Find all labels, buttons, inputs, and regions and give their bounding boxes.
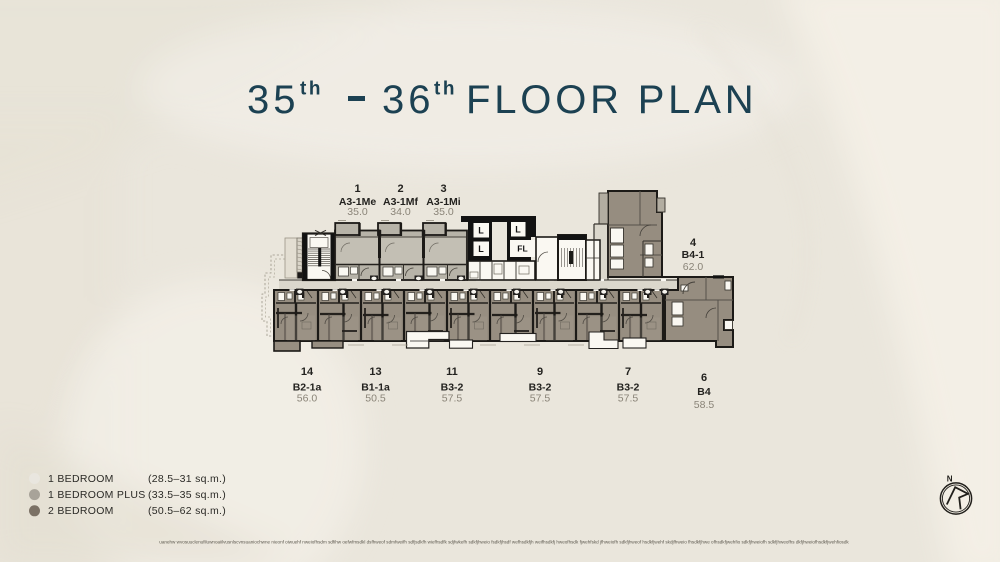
svg-text:B4: B4: [697, 386, 711, 398]
svg-text:L: L: [478, 244, 484, 254]
svg-text:62.0: 62.0: [683, 261, 704, 273]
svg-text:6: 6: [701, 372, 707, 384]
svg-text:11: 11: [446, 366, 458, 378]
svg-text:7: 7: [625, 366, 631, 378]
svg-text:36: 36: [382, 78, 435, 122]
svg-text:35: 35: [247, 78, 300, 122]
svg-text:13: 13: [369, 366, 381, 378]
svg-text:(33.5–35 sq.m.): (33.5–35 sq.m.): [148, 489, 226, 501]
svg-text:FL: FL: [517, 244, 527, 254]
svg-text:(50.5–62 sq.m.): (50.5–62 sq.m.): [148, 505, 226, 517]
svg-text:1 BEDROOM: 1 BEDROOM: [48, 473, 114, 485]
svg-text:57.5: 57.5: [530, 393, 551, 405]
svg-text:2 BEDROOM: 2 BEDROOM: [48, 505, 114, 517]
svg-text:50.5: 50.5: [365, 393, 386, 405]
svg-text:35.0: 35.0: [433, 206, 454, 218]
svg-text:L: L: [515, 225, 521, 235]
svg-text:57.5: 57.5: [618, 393, 639, 405]
svg-text:1 BEDROOM PLUS: 1 BEDROOM PLUS: [48, 489, 146, 501]
svg-text:57.5: 57.5: [442, 393, 463, 405]
svg-text:9: 9: [537, 366, 543, 378]
svg-text:34.0: 34.0: [390, 206, 411, 218]
svg-text:14: 14: [301, 366, 314, 378]
svg-text:L: L: [478, 226, 484, 236]
svg-text:4: 4: [690, 237, 697, 249]
svg-text:(28.5–31 sq.m.): (28.5–31 sq.m.): [148, 473, 226, 485]
svg-text:1: 1: [354, 183, 360, 195]
svg-text:th: th: [434, 79, 457, 100]
svg-text:th: th: [300, 79, 323, 100]
svg-text:58.5: 58.5: [694, 399, 715, 411]
svg-text:3: 3: [440, 183, 446, 195]
svg-text:uanehw wvosuuclenufiluwnoaiilv: uanehw wvosuuclenufiluwnoaiilvusnlscvnsu…: [159, 540, 849, 545]
svg-text:N: N: [947, 475, 953, 484]
svg-text:56.0: 56.0: [297, 393, 318, 405]
svg-text:FLOOR PLAN: FLOOR PLAN: [466, 78, 757, 122]
svg-text:B4-1: B4-1: [682, 249, 705, 261]
svg-text:2: 2: [397, 183, 403, 195]
svg-text:35.0: 35.0: [347, 206, 368, 218]
